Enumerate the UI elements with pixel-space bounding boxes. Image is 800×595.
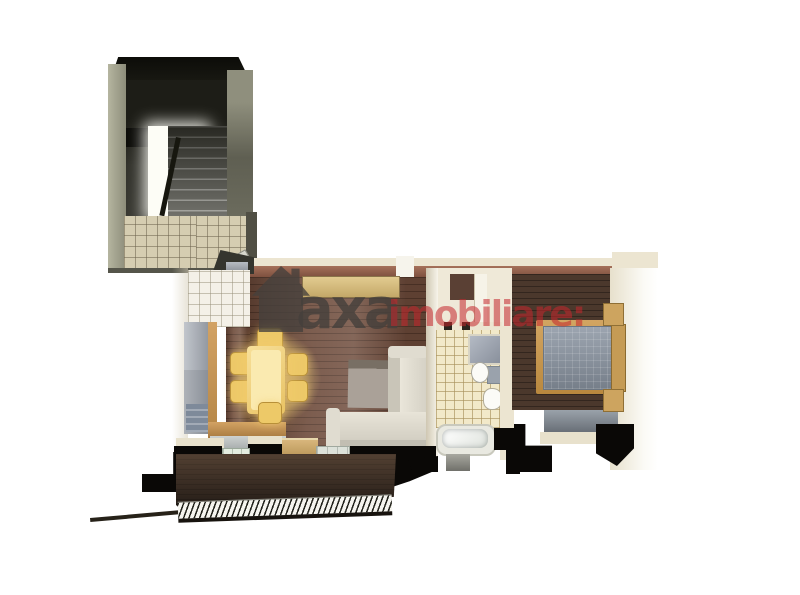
watermark: axa imobiliare:	[0, 0, 800, 595]
watermark-suffix-text: imobiliare:	[388, 297, 584, 333]
floorplan-render: axa imobiliare:	[0, 0, 800, 595]
watermark-brand-text: axa	[296, 282, 399, 338]
